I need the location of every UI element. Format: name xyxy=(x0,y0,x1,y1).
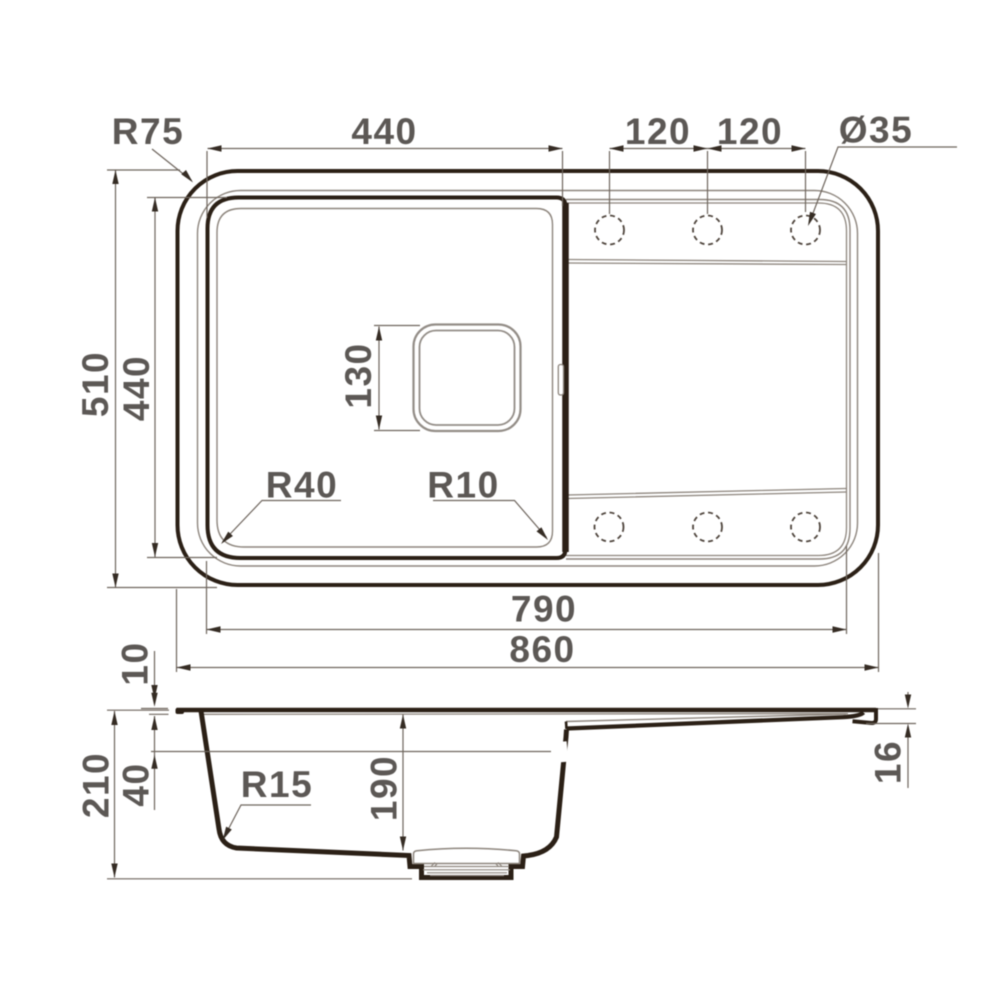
svg-text:R10: R10 xyxy=(427,465,499,506)
svg-text:440: 440 xyxy=(116,355,157,421)
svg-text:R75: R75 xyxy=(112,111,184,152)
svg-text:40: 40 xyxy=(116,762,157,806)
svg-text:790: 790 xyxy=(511,589,577,630)
svg-text:510: 510 xyxy=(75,351,116,417)
svg-text:190: 190 xyxy=(364,755,405,821)
svg-text:10: 10 xyxy=(115,641,156,685)
svg-text:Ø35: Ø35 xyxy=(839,110,913,151)
svg-text:R40: R40 xyxy=(266,465,338,506)
svg-text:210: 210 xyxy=(76,752,117,818)
svg-text:R15: R15 xyxy=(241,764,313,805)
svg-text:130: 130 xyxy=(338,342,379,408)
svg-text:16: 16 xyxy=(868,740,909,784)
svg-text:120: 120 xyxy=(717,111,783,152)
svg-text:860: 860 xyxy=(509,629,575,670)
svg-text:440: 440 xyxy=(351,111,417,152)
svg-text:120: 120 xyxy=(625,111,691,152)
